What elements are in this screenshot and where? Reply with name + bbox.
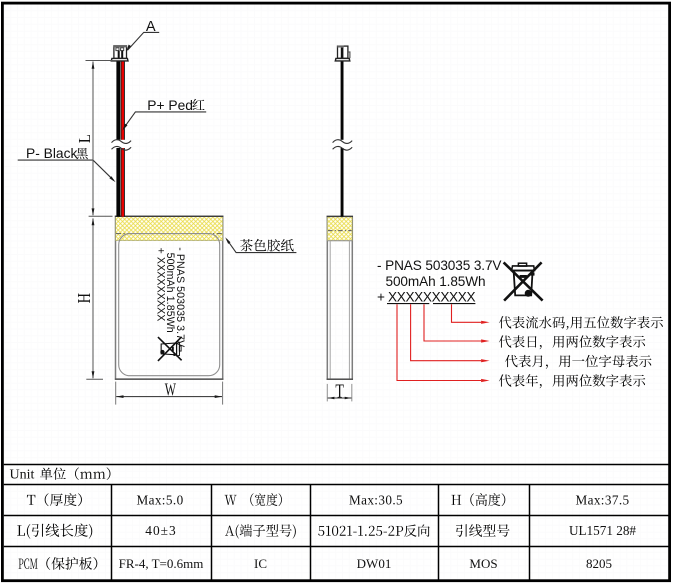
svg-text:T: T xyxy=(335,380,344,402)
svg-text:40±3: 40±3 xyxy=(145,523,176,538)
svg-text:- PNAS 503035 3.7V: - PNAS 503035 3.7V xyxy=(377,258,501,273)
svg-text:+ XXXXXXXXX: + XXXXXXXXX xyxy=(155,248,167,322)
svg-text:MOS: MOS xyxy=(469,556,497,571)
svg-text:IC: IC xyxy=(254,556,267,571)
svg-text:L: L xyxy=(77,134,95,143)
svg-text:UL1571 28#: UL1571 28# xyxy=(569,523,636,538)
svg-text:Max:30.5: Max:30.5 xyxy=(349,492,403,507)
svg-text:8205: 8205 xyxy=(586,556,612,571)
svg-text:P- Black: P- Black xyxy=(26,146,77,161)
svg-text:H: H xyxy=(74,293,95,304)
svg-text:DW01: DW01 xyxy=(357,556,392,571)
svg-text:P+ Ped: P+ Ped xyxy=(147,98,193,113)
svg-text:Unit: Unit xyxy=(10,468,35,483)
svg-text:+ XXXXXXXXXX: + XXXXXXXXXX xyxy=(377,290,475,305)
svg-text:500mAh 1.85Wh: 500mAh 1.85Wh xyxy=(386,274,486,289)
svg-text:FR-4, T=0.6mm: FR-4, T=0.6mm xyxy=(119,556,204,571)
svg-text:W: W xyxy=(165,382,177,401)
svg-text:Max:5.0: Max:5.0 xyxy=(136,492,183,507)
svg-text:Max:37.5: Max:37.5 xyxy=(575,492,629,507)
